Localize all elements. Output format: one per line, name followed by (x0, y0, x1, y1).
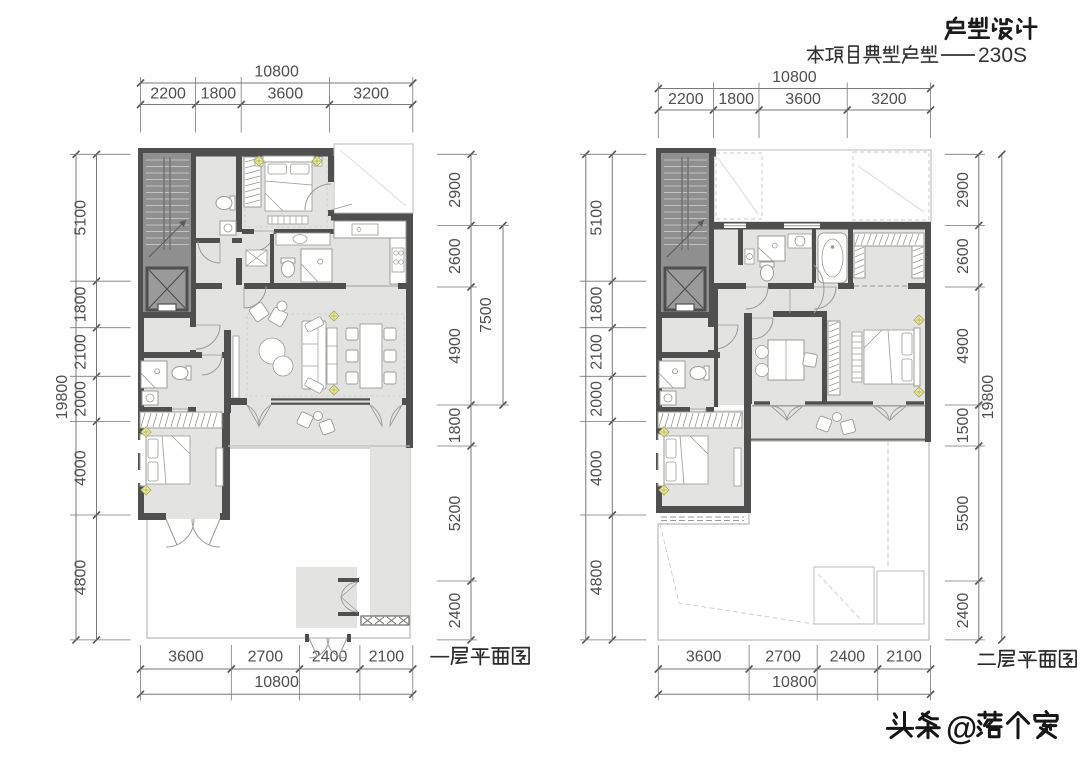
svg-text:1800: 1800 (588, 287, 605, 323)
svg-text:5200: 5200 (447, 496, 464, 532)
svg-text:4900: 4900 (955, 328, 972, 364)
svg-text:2000: 2000 (588, 381, 605, 417)
svg-text:2400: 2400 (955, 593, 972, 629)
svg-text:3600: 3600 (168, 649, 204, 666)
svg-text:4000: 4000 (73, 450, 90, 486)
svg-text:2900: 2900 (447, 172, 464, 208)
svg-text:230S: 230S (978, 44, 1027, 67)
svg-text:2000: 2000 (73, 381, 90, 417)
svg-text:2400: 2400 (447, 593, 464, 629)
svg-text:5100: 5100 (588, 200, 605, 236)
svg-text:1800: 1800 (73, 287, 90, 323)
svg-text:2200: 2200 (668, 91, 704, 108)
svg-text:5500: 5500 (955, 496, 972, 532)
svg-text:5100: 5100 (73, 200, 90, 236)
svg-text:10800: 10800 (772, 69, 817, 86)
svg-text:4000: 4000 (588, 450, 605, 486)
svg-text:2600: 2600 (955, 238, 972, 274)
svg-text:2100: 2100 (588, 334, 605, 370)
svg-text:2700: 2700 (248, 649, 284, 666)
svg-text:2600: 2600 (447, 238, 464, 274)
svg-text:2100: 2100 (369, 649, 405, 666)
svg-text:2700: 2700 (765, 649, 801, 666)
svg-text:1800: 1800 (718, 91, 754, 108)
svg-text:3600: 3600 (686, 649, 722, 666)
svg-text:4800: 4800 (73, 560, 90, 596)
svg-text:4900: 4900 (447, 328, 464, 364)
svg-text:2900: 2900 (955, 172, 972, 208)
svg-text:10800: 10800 (254, 64, 299, 81)
svg-text:@: @ (946, 710, 977, 746)
svg-text:3200: 3200 (353, 86, 389, 103)
svg-text:19800: 19800 (54, 375, 71, 420)
svg-text:3600: 3600 (268, 86, 304, 103)
svg-text:7500: 7500 (478, 297, 495, 333)
svg-text:2200: 2200 (150, 86, 186, 103)
svg-text:3200: 3200 (871, 91, 907, 108)
svg-text:4800: 4800 (588, 560, 605, 596)
svg-text:1800: 1800 (447, 408, 464, 444)
svg-text:1800: 1800 (201, 86, 237, 103)
svg-text:1500: 1500 (955, 408, 972, 444)
svg-text:10800: 10800 (254, 674, 299, 691)
svg-text:2100: 2100 (886, 649, 922, 666)
svg-text:19800: 19800 (980, 375, 997, 420)
svg-text:2100: 2100 (73, 334, 90, 370)
svg-text:2400: 2400 (830, 649, 866, 666)
svg-text:3600: 3600 (785, 91, 821, 108)
svg-text:10800: 10800 (772, 674, 817, 691)
